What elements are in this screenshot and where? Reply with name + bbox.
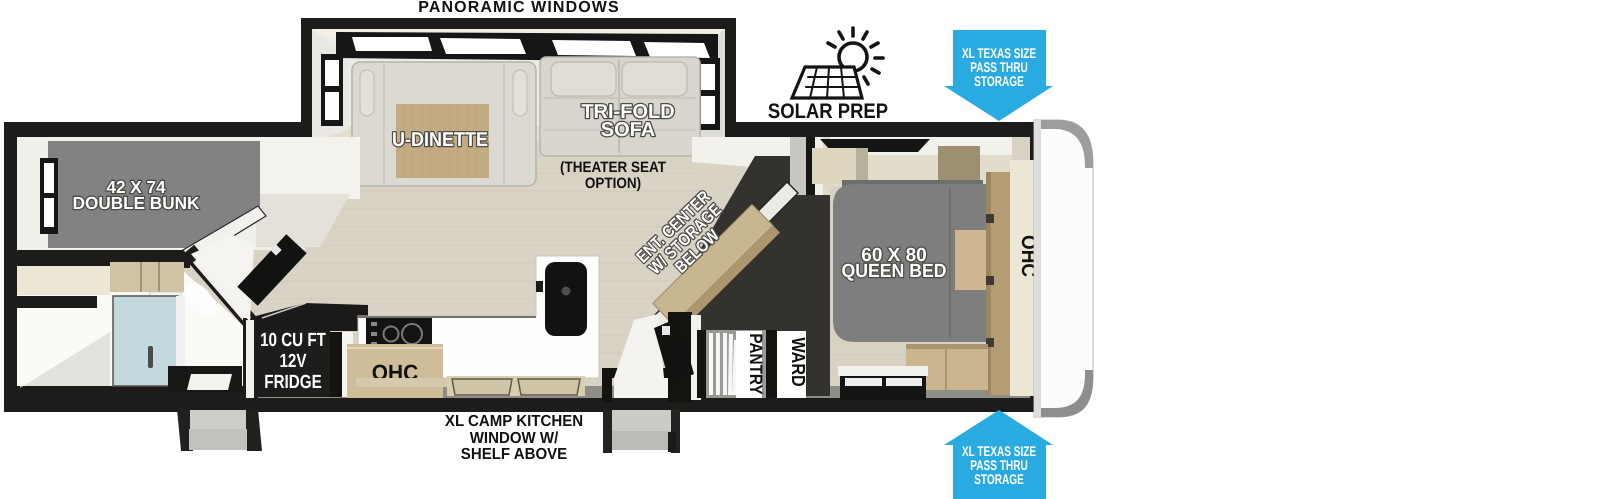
svg-text:SHELF ABOVE: SHELF ABOVE xyxy=(461,446,568,463)
svg-text:WINDOW W/: WINDOW W/ xyxy=(470,430,559,447)
svg-text:SOFA: SOFA xyxy=(601,119,655,141)
svg-text:FRIDGE: FRIDGE xyxy=(264,372,321,393)
svg-text:XL CAMP KITCHEN: XL CAMP KITCHEN xyxy=(445,413,583,430)
svg-text:QUEEN BED: QUEEN BED xyxy=(841,261,946,282)
svg-text:U-DINETTE: U-DINETTE xyxy=(392,129,488,151)
svg-text:SOLAR PREP: SOLAR PREP xyxy=(768,100,888,123)
svg-text:12V: 12V xyxy=(279,351,306,372)
svg-text:10 CU FT: 10 CU FT xyxy=(260,330,326,351)
svg-text:(THEATER SEAT: (THEATER SEAT xyxy=(560,159,666,176)
svg-text:STORAGE: STORAGE xyxy=(974,471,1024,487)
svg-text:STORAGE: STORAGE xyxy=(974,73,1024,89)
svg-text:OPTION): OPTION) xyxy=(585,175,641,192)
svg-text:PANTRY: PANTRY xyxy=(746,333,766,394)
svg-text:PANORAMIC WINDOWS: PANORAMIC WINDOWS xyxy=(418,0,620,16)
svg-text:DOUBLE BUNK: DOUBLE BUNK xyxy=(73,193,200,213)
svg-text:WARD: WARD xyxy=(787,337,808,386)
